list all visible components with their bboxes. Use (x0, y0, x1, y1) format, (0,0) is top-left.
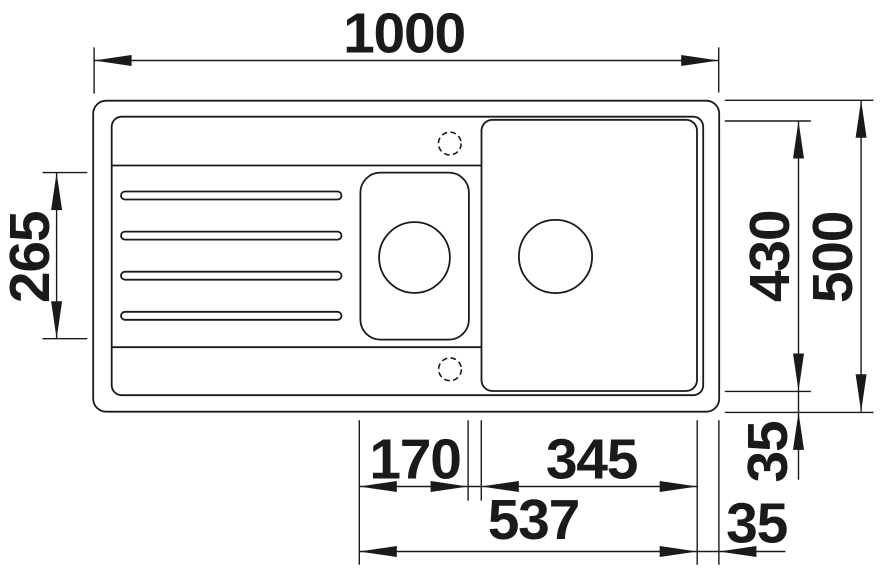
svg-text:345: 345 (546, 428, 638, 492)
svg-text:430: 430 (738, 211, 802, 302)
svg-text:537: 537 (488, 488, 579, 552)
svg-text:35: 35 (726, 492, 787, 556)
svg-text:1000: 1000 (343, 2, 465, 66)
svg-text:35: 35 (736, 421, 800, 482)
svg-text:170: 170 (369, 428, 460, 492)
svg-text:265: 265 (0, 211, 62, 303)
svg-text:500: 500 (801, 212, 865, 303)
